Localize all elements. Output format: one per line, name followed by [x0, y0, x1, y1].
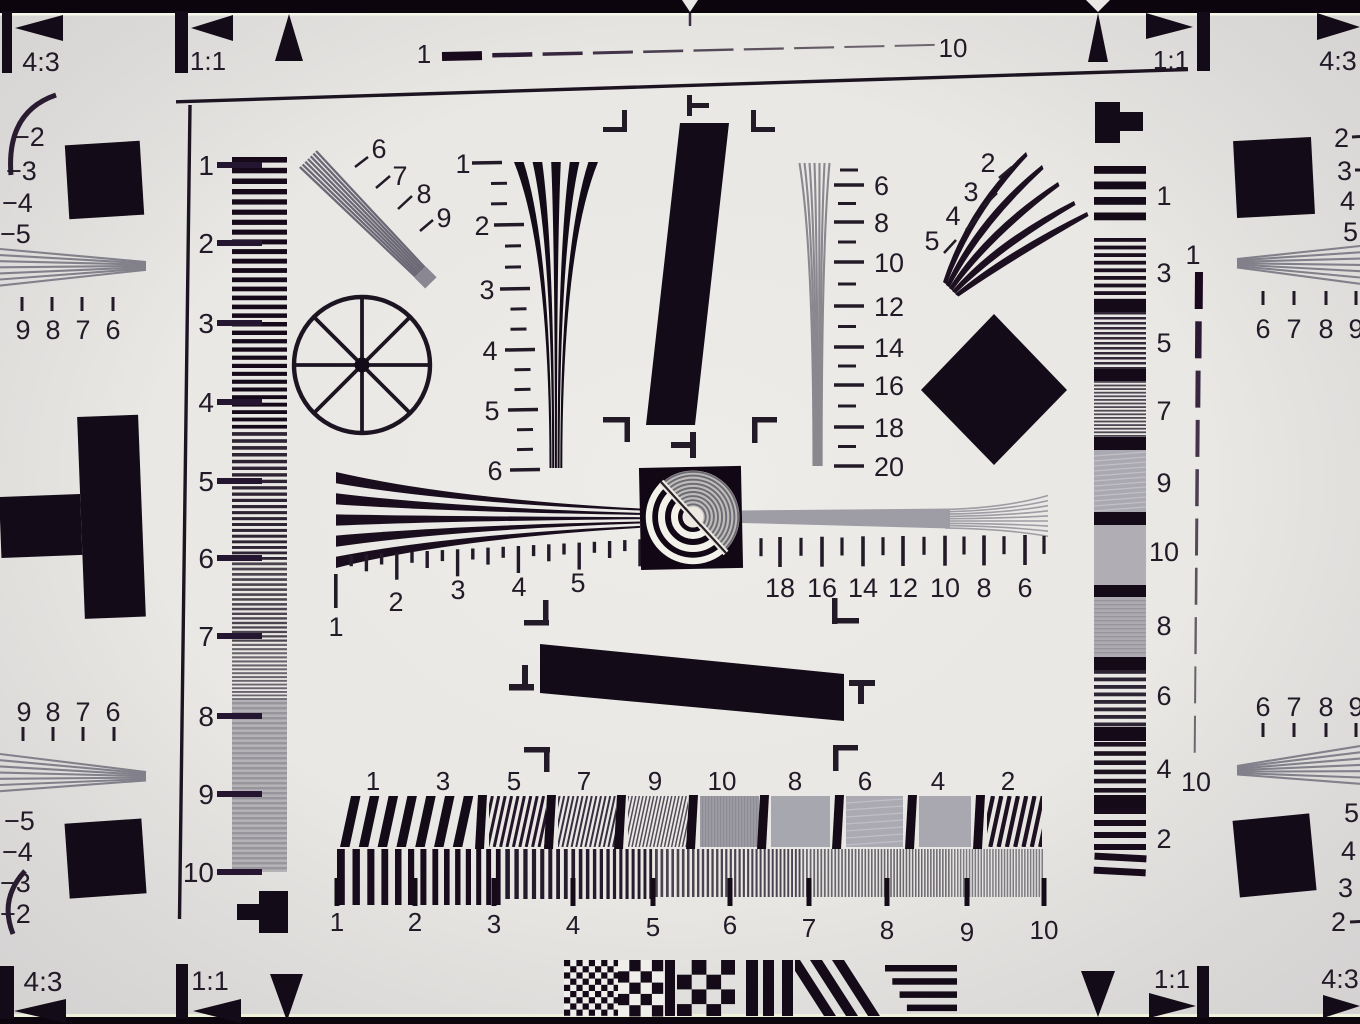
svg-text:4: 4	[511, 572, 526, 602]
svg-text:5: 5	[1343, 217, 1358, 247]
svg-text:−5: −5	[4, 806, 35, 836]
svg-text:12: 12	[888, 573, 918, 603]
svg-text:7: 7	[392, 161, 407, 191]
svg-text:−3: −3	[6, 156, 37, 186]
svg-text:6: 6	[723, 910, 737, 940]
svg-text:10: 10	[930, 573, 960, 603]
svg-text:6: 6	[858, 766, 872, 796]
svg-text:6: 6	[1255, 314, 1270, 344]
svg-text:4: 4	[1340, 186, 1355, 216]
svg-text:7: 7	[1286, 692, 1301, 722]
svg-text:20: 20	[874, 452, 904, 482]
svg-text:2: 2	[980, 148, 995, 178]
svg-text:10: 10	[874, 248, 904, 278]
svg-text:8: 8	[45, 315, 60, 345]
svg-text:8: 8	[1318, 314, 1333, 344]
svg-text:8: 8	[874, 208, 889, 238]
svg-text:8: 8	[416, 179, 431, 209]
svg-text:3: 3	[450, 575, 465, 605]
svg-text:2: 2	[388, 587, 403, 617]
svg-text:4:3: 4:3	[22, 47, 60, 77]
svg-text:1: 1	[1185, 240, 1200, 270]
svg-text:4: 4	[945, 201, 960, 231]
svg-text:12: 12	[874, 292, 904, 322]
svg-text:4:3: 4:3	[24, 966, 63, 997]
svg-text:1: 1	[330, 907, 344, 937]
svg-text:9: 9	[648, 766, 662, 796]
svg-text:9: 9	[436, 203, 451, 233]
svg-text:4:3: 4:3	[1319, 46, 1357, 76]
svg-text:6: 6	[105, 315, 120, 345]
svg-text:1: 1	[417, 39, 431, 69]
svg-text:8: 8	[198, 701, 214, 732]
svg-text:1:1: 1:1	[190, 46, 226, 76]
svg-text:3: 3	[1338, 873, 1353, 903]
svg-text:5: 5	[198, 466, 214, 497]
svg-text:9: 9	[960, 917, 974, 947]
svg-text:9: 9	[198, 779, 214, 810]
svg-text:6: 6	[105, 697, 120, 727]
svg-text:7: 7	[577, 766, 591, 796]
svg-text:1:1: 1:1	[191, 966, 229, 996]
svg-text:3: 3	[479, 275, 494, 305]
svg-text:14: 14	[874, 333, 904, 363]
svg-text:4: 4	[1341, 836, 1356, 866]
svg-text:9: 9	[15, 315, 30, 345]
svg-text:−4: −4	[2, 188, 33, 218]
svg-text:10: 10	[939, 33, 968, 63]
svg-text:7: 7	[198, 621, 214, 652]
svg-text:9: 9	[16, 697, 31, 727]
svg-text:8: 8	[1156, 611, 1171, 641]
svg-text:1: 1	[1156, 181, 1171, 211]
svg-text:4: 4	[931, 766, 945, 796]
svg-text:18: 18	[765, 573, 795, 603]
svg-text:4: 4	[198, 387, 214, 418]
svg-text:5: 5	[570, 568, 585, 598]
svg-text:−2: −2	[0, 899, 31, 929]
svg-text:6: 6	[487, 456, 502, 486]
svg-text:9: 9	[1348, 692, 1360, 722]
svg-text:6: 6	[371, 134, 386, 164]
svg-text:10: 10	[1030, 915, 1059, 945]
svg-text:14: 14	[848, 573, 878, 603]
svg-text:10: 10	[1181, 767, 1211, 797]
svg-text:2: 2	[474, 211, 489, 241]
svg-text:2: 2	[1156, 824, 1171, 854]
svg-text:9: 9	[1348, 314, 1360, 344]
svg-text:−5: −5	[0, 219, 31, 249]
svg-text:7: 7	[75, 697, 90, 727]
svg-text:10: 10	[183, 857, 214, 888]
svg-text:3: 3	[1156, 258, 1171, 288]
svg-text:6: 6	[198, 543, 214, 574]
svg-text:5: 5	[1344, 798, 1359, 828]
svg-text:3: 3	[487, 909, 501, 939]
svg-text:−2: −2	[14, 122, 45, 152]
svg-text:8: 8	[880, 915, 894, 945]
svg-text:18: 18	[874, 413, 904, 443]
svg-text:4: 4	[566, 910, 580, 940]
svg-text:2: 2	[1334, 123, 1349, 153]
svg-text:3: 3	[198, 308, 214, 339]
svg-text:1: 1	[198, 150, 214, 181]
svg-text:1: 1	[455, 149, 470, 179]
svg-text:6: 6	[874, 171, 889, 201]
svg-text:8: 8	[1318, 692, 1333, 722]
svg-text:4: 4	[482, 336, 497, 366]
svg-text:2: 2	[1001, 766, 1015, 796]
svg-text:7: 7	[802, 913, 816, 943]
svg-text:5: 5	[924, 226, 939, 256]
svg-text:9: 9	[1156, 468, 1171, 498]
svg-text:5: 5	[507, 766, 521, 796]
svg-text:4:3: 4:3	[1321, 964, 1359, 994]
svg-text:3: 3	[436, 766, 450, 796]
svg-text:16: 16	[874, 371, 904, 401]
svg-text:6: 6	[1255, 692, 1270, 722]
svg-text:10: 10	[708, 766, 737, 796]
svg-text:2: 2	[408, 907, 422, 937]
svg-text:10: 10	[1149, 537, 1179, 567]
svg-text:3: 3	[1337, 156, 1352, 186]
svg-text:1: 1	[366, 766, 380, 796]
svg-text:8: 8	[788, 766, 802, 796]
svg-text:2: 2	[198, 228, 214, 259]
svg-text:6: 6	[1017, 573, 1032, 603]
svg-text:7: 7	[75, 315, 90, 345]
svg-text:7: 7	[1156, 396, 1171, 426]
svg-text:1: 1	[328, 612, 343, 642]
svg-text:−4: −4	[2, 837, 33, 867]
svg-text:1:1: 1:1	[1154, 964, 1190, 994]
svg-text:2: 2	[1331, 907, 1346, 937]
svg-text:7: 7	[1286, 314, 1301, 344]
svg-text:5: 5	[1156, 328, 1171, 358]
svg-text:5: 5	[484, 396, 499, 426]
svg-text:5: 5	[646, 912, 660, 942]
svg-text:8: 8	[45, 697, 60, 727]
svg-text:3: 3	[963, 177, 978, 207]
svg-text:8: 8	[976, 573, 991, 603]
svg-text:4: 4	[1156, 754, 1171, 784]
svg-text:6: 6	[1156, 681, 1171, 711]
